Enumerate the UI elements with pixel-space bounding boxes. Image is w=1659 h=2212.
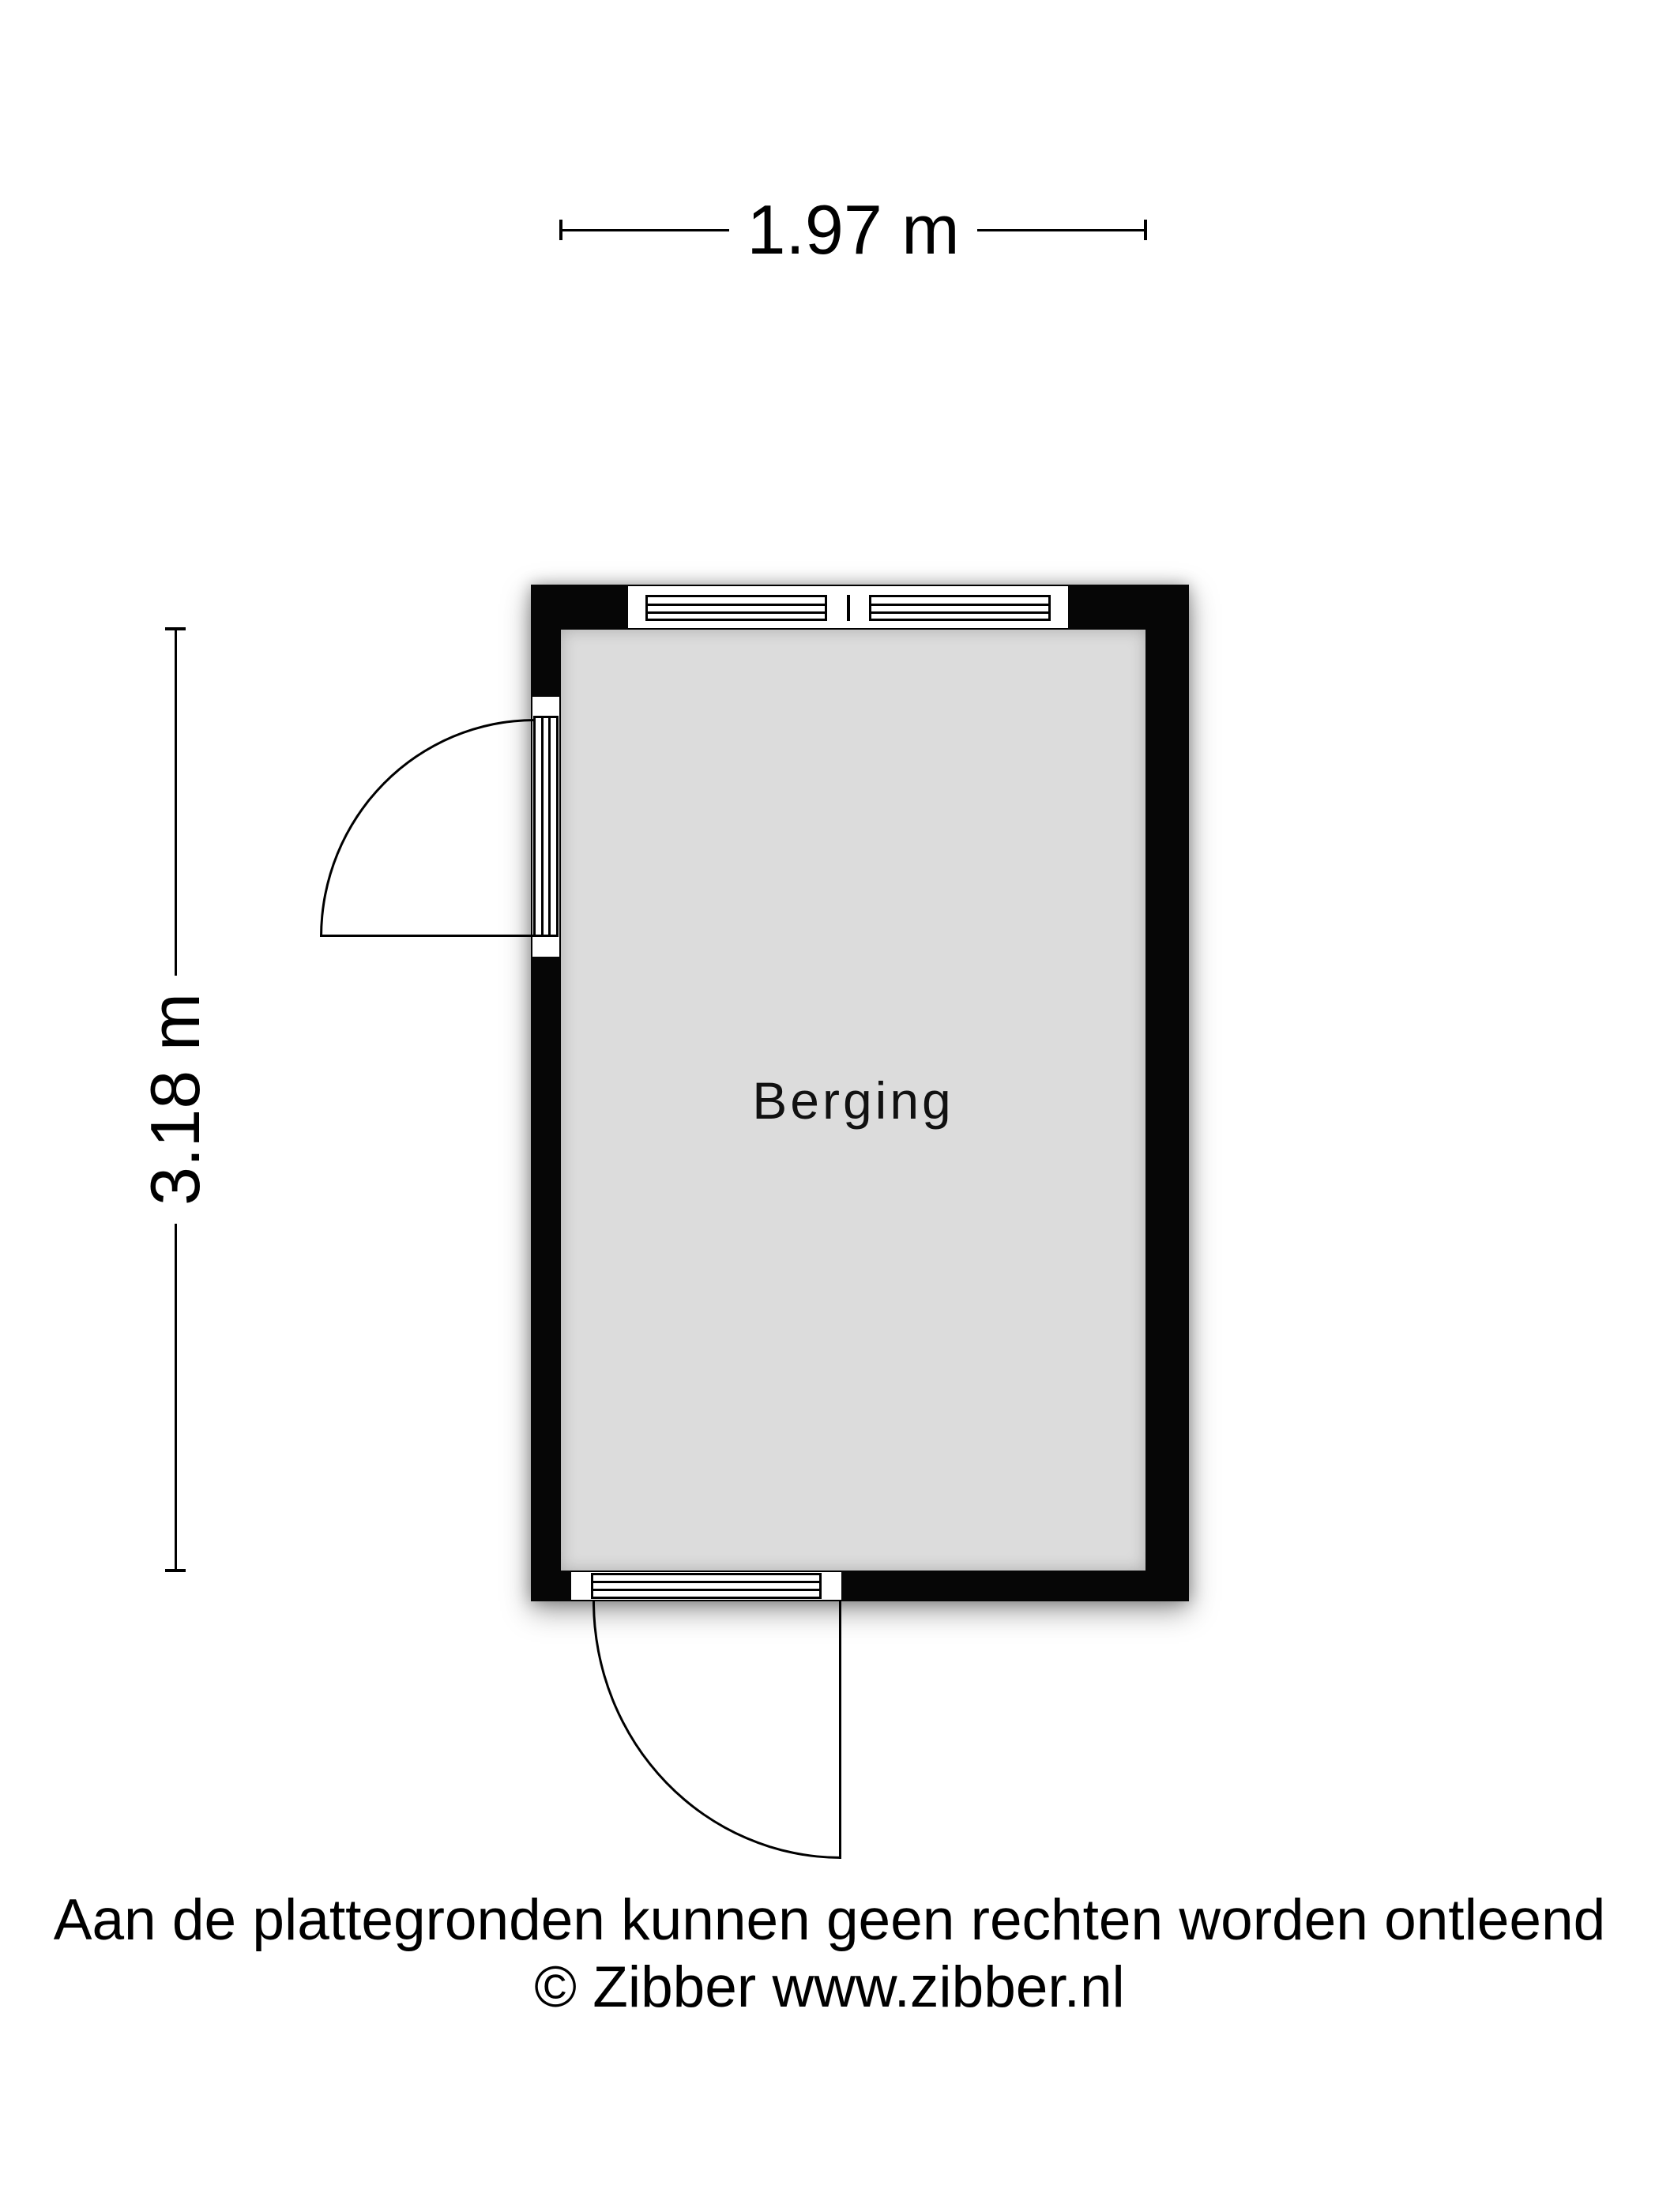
door-left-swing-arc bbox=[320, 719, 535, 937]
dimension-height: 3.18 m bbox=[165, 627, 186, 1572]
window-frame bbox=[628, 595, 1068, 621]
building-outline: Berging bbox=[531, 585, 1189, 1601]
dim-line-segment bbox=[562, 229, 729, 231]
door-glass-line bbox=[541, 718, 544, 935]
window-mullion-cell bbox=[827, 595, 847, 621]
dim-line-segment bbox=[175, 630, 177, 976]
window-pane bbox=[645, 595, 827, 621]
door-glass-line bbox=[548, 718, 551, 935]
window-glass-line bbox=[871, 611, 1048, 614]
door-left bbox=[531, 697, 561, 957]
footer-credit: © Zibber www.zibber.nl bbox=[0, 1954, 1659, 2021]
window-top bbox=[628, 585, 1068, 630]
window-end-cap bbox=[1051, 595, 1068, 621]
window-mullion bbox=[827, 595, 869, 621]
window-mullion-cell bbox=[850, 595, 870, 621]
door-left-leaf-line bbox=[320, 935, 535, 937]
dim-line-segment bbox=[175, 1224, 177, 1569]
window-glass-line bbox=[648, 604, 825, 606]
door-left-panel bbox=[533, 716, 559, 937]
dim-tick-bottom bbox=[165, 1569, 186, 1572]
door-bottom bbox=[571, 1571, 841, 1601]
floorplan-canvas: 1.97 m 3.18 m Berging bbox=[0, 0, 1659, 2212]
window-glass-line bbox=[648, 611, 825, 614]
window-pane bbox=[869, 595, 1051, 621]
dim-line-segment bbox=[977, 229, 1144, 231]
window-end-cap bbox=[628, 595, 645, 621]
dim-tick-right bbox=[1144, 220, 1147, 240]
dimension-height-label: 3.18 m bbox=[141, 976, 210, 1223]
room-floor: Berging bbox=[561, 630, 1145, 1571]
footer: Aan de plattegronden kunnen geen rechten… bbox=[0, 1887, 1659, 2021]
door-glass-line bbox=[593, 1581, 819, 1583]
window-glass-line bbox=[871, 604, 1048, 606]
room-label: Berging bbox=[752, 1070, 954, 1130]
footer-disclaimer: Aan de plattegronden kunnen geen rechten… bbox=[0, 1887, 1659, 1954]
door-bottom-swing-arc bbox=[592, 1601, 841, 1859]
door-bottom-leaf-line bbox=[839, 1601, 841, 1859]
dimension-width-label: 1.97 m bbox=[729, 195, 976, 265]
door-bottom-panel bbox=[591, 1573, 822, 1599]
dimension-width: 1.97 m bbox=[559, 190, 1147, 269]
door-glass-line bbox=[593, 1589, 819, 1591]
